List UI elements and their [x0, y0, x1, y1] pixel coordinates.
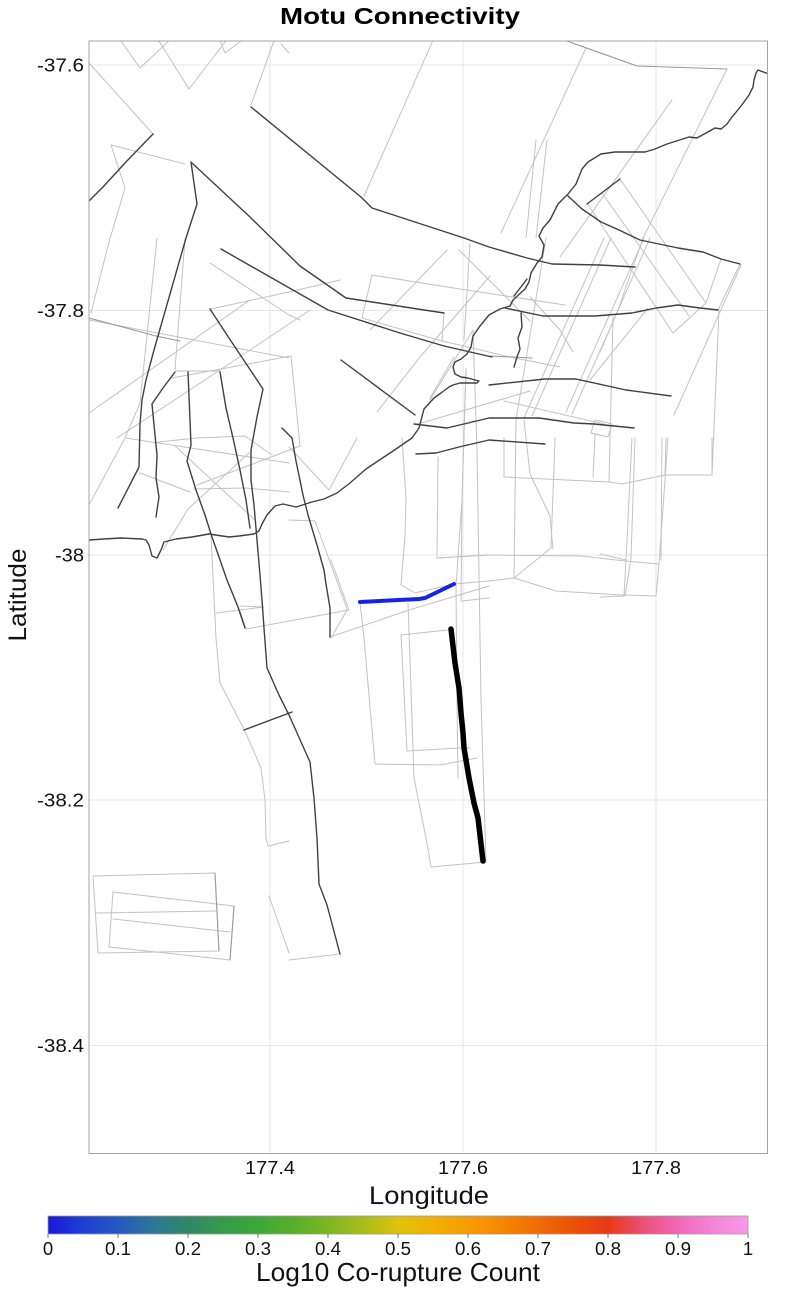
svg-text:0: 0 — [43, 1238, 53, 1259]
svg-text:0.4: 0.4 — [315, 1238, 341, 1259]
svg-text:-38.2: -38.2 — [37, 790, 84, 811]
svg-text:Longitude: Longitude — [369, 1182, 489, 1210]
svg-text:0.1: 0.1 — [105, 1238, 131, 1259]
svg-text:0.8: 0.8 — [595, 1238, 621, 1259]
svg-text:177.8: 177.8 — [631, 1157, 681, 1178]
svg-text:177.4: 177.4 — [245, 1157, 295, 1178]
svg-text:0.5: 0.5 — [385, 1238, 411, 1259]
svg-text:-38: -38 — [55, 545, 84, 566]
svg-text:0.6: 0.6 — [455, 1238, 481, 1259]
svg-text:0.3: 0.3 — [245, 1238, 271, 1259]
svg-text:0.7: 0.7 — [525, 1238, 551, 1259]
svg-text:Motu Connectivity: Motu Connectivity — [280, 3, 520, 29]
svg-text:-37.8: -37.8 — [37, 300, 84, 321]
svg-text:177.6: 177.6 — [438, 1157, 488, 1178]
svg-text:-38.4: -38.4 — [37, 1035, 84, 1056]
svg-text:Log10 Co-rupture Count: Log10 Co-rupture Count — [256, 1257, 541, 1287]
svg-text:-37.6: -37.6 — [37, 55, 84, 76]
svg-text:1: 1 — [743, 1238, 753, 1259]
svg-text:Latitude: Latitude — [4, 549, 32, 642]
svg-text:0.2: 0.2 — [175, 1238, 201, 1259]
svg-text:0.9: 0.9 — [665, 1238, 691, 1259]
